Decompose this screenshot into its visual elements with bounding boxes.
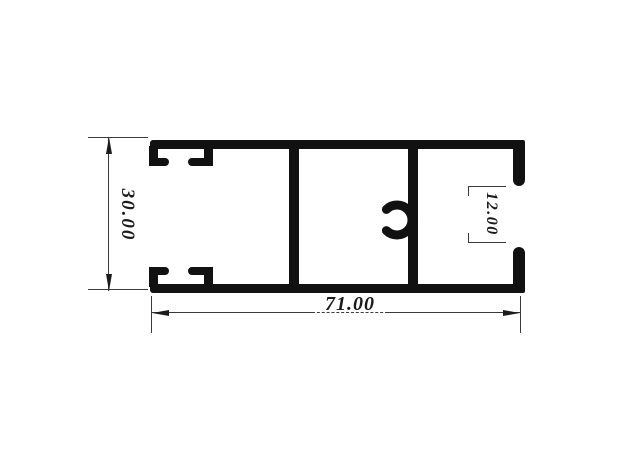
height-dim-extension-top — [88, 137, 148, 138]
bottom-channel-inner-leg — [204, 273, 213, 287]
height-dim-arrow-down — [106, 274, 112, 291]
width-dim-arrow-right — [503, 310, 520, 316]
bottom-channel-outer-foot — [149, 267, 169, 275]
width-dim-extension-right — [520, 296, 521, 333]
width-dim-line-right — [388, 312, 520, 313]
width-dim-arrow-left — [152, 310, 169, 316]
opening-dim-tick-top — [468, 186, 469, 196]
profile-technical-drawing: 30.00 71.00 12.00 — [0, 0, 630, 474]
opening-dim-tick-bottom — [468, 233, 469, 243]
screw-boss — [370, 195, 420, 245]
opening-dim-label: 12.00 — [479, 179, 499, 249]
bottom-channel-inner-foot — [188, 267, 213, 275]
top-channel-outer-foot — [149, 158, 169, 166]
divider-wall-left — [289, 140, 299, 293]
width-dim-label: 71.00 — [302, 294, 398, 314]
height-dim-line — [108, 137, 109, 291]
right-wall-lower-segment — [513, 247, 525, 293]
height-dim-label: 30.00 — [115, 179, 137, 251]
right-wall-upper-segment — [513, 140, 525, 186]
top-channel-inner-foot — [188, 158, 213, 166]
height-dim-extension-bottom — [88, 289, 148, 290]
height-dim-arrow-up — [106, 137, 112, 154]
width-dim-line-left — [152, 312, 312, 313]
screw-boss-arc — [386, 205, 412, 235]
